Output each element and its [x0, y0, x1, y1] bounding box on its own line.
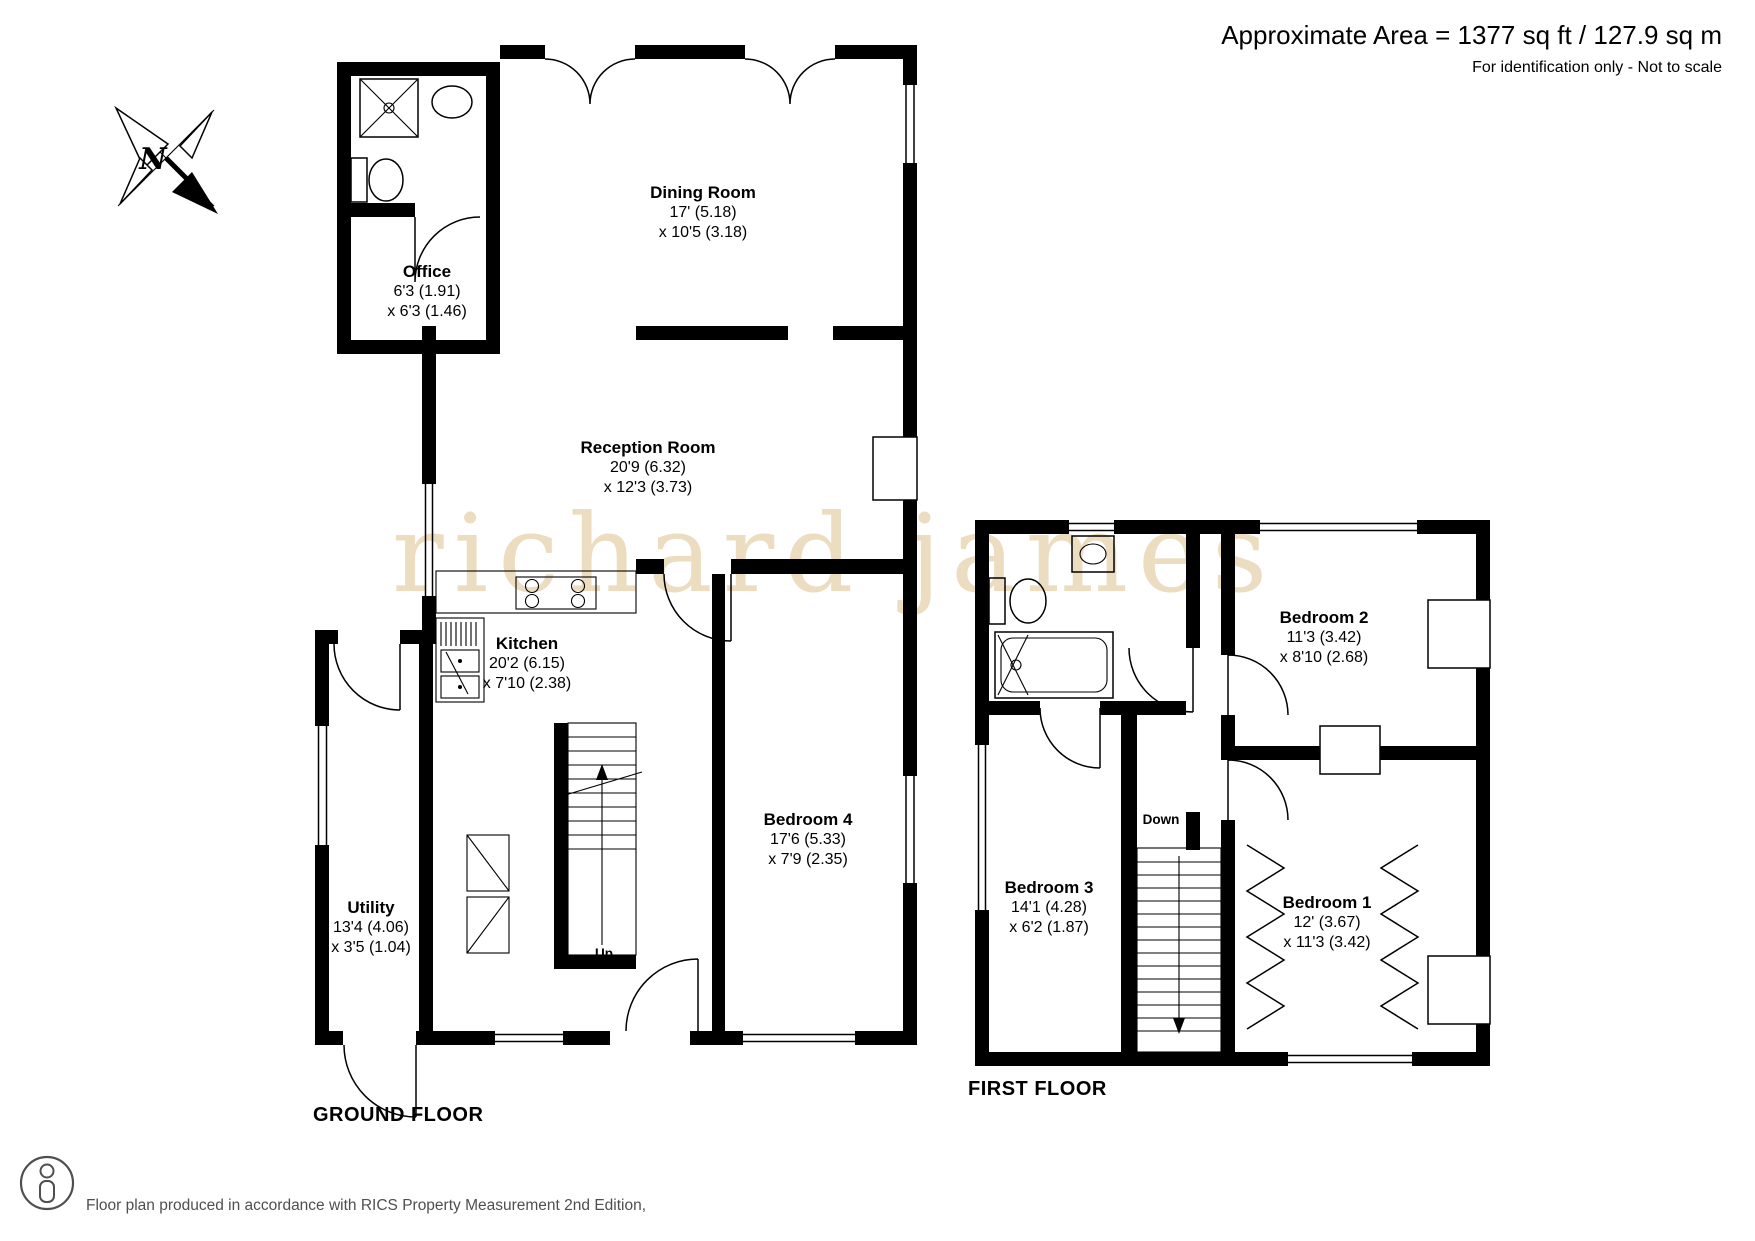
- room-dimension: x 8'10 (2.68): [1280, 648, 1369, 668]
- room-label-bedroom-4: Bedroom 4 17'6 (5.33) x 7'9 (2.35): [764, 810, 853, 870]
- room-dimension: x 6'3 (1.46): [387, 302, 467, 322]
- room-dimension: 17'6 (5.33): [764, 830, 853, 850]
- identification-note-text: For identification only - Not to scale: [1221, 59, 1722, 77]
- bathroom-basin-icon: [1072, 536, 1114, 572]
- room-dimension: x 7'9 (2.35): [764, 850, 853, 870]
- room-dimension: x 12'3 (3.73): [580, 478, 715, 498]
- stairs-up-label: Up: [595, 946, 613, 961]
- room-dimension: 20'9 (6.32): [580, 458, 715, 478]
- footer-line-1: Floor plan produced in accordance with R…: [86, 1195, 791, 1216]
- approximate-area-text: Approximate Area = 1377 sq ft / 127.9 sq…: [1221, 20, 1722, 51]
- first-floor-doors: [1040, 648, 1288, 820]
- ground-floor-stairs: [562, 723, 642, 955]
- bathtub-icon: [995, 632, 1113, 698]
- room-name: Bedroom 3: [1005, 878, 1094, 898]
- footer-disclaimer: Floor plan produced in accordance with R…: [86, 1153, 791, 1241]
- stairs-down-label: Down: [1143, 812, 1180, 827]
- cloakroom-fixtures: [351, 79, 472, 202]
- room-name: Utility: [331, 898, 411, 918]
- bathroom-fixtures: [989, 536, 1114, 698]
- room-dimension: x 6'2 (1.87): [1005, 918, 1094, 938]
- shower-icon: [360, 79, 418, 137]
- room-name: Bedroom 1: [1283, 893, 1372, 913]
- person-badge-icon: [21, 1157, 73, 1209]
- compass-rose-icon: N: [116, 108, 218, 214]
- bathroom-toilet-icon: [989, 578, 1046, 624]
- basin-icon: [432, 86, 472, 118]
- room-label-dining-room: Dining Room 17' (5.18) x 10'5 (3.18): [650, 183, 756, 243]
- floorplan-page: richard james N: [0, 0, 1755, 1241]
- room-dimension: 13'4 (4.06): [331, 918, 411, 938]
- room-name: Dining Room: [650, 183, 756, 203]
- ground-floor-title: GROUND FLOOR: [313, 1104, 483, 1127]
- first-floor-plan: [975, 520, 1490, 1066]
- compass-north-label: N: [138, 142, 168, 177]
- room-dimension: 20'2 (6.15): [483, 654, 571, 674]
- room-name: Office: [387, 262, 467, 282]
- utility-appliance-icons: [467, 835, 509, 953]
- room-name: Bedroom 4: [764, 810, 853, 830]
- room-dimension: 12' (3.67): [1283, 913, 1372, 933]
- first-floor-title: FIRST FLOOR: [968, 1078, 1107, 1101]
- room-name: Kitchen: [483, 634, 571, 654]
- toilet-icon: [351, 158, 403, 202]
- room-dimension: x 11'3 (3.42): [1283, 933, 1372, 953]
- header: Approximate Area = 1377 sq ft / 127.9 sq…: [1221, 20, 1722, 77]
- first-floor-walls: [975, 520, 1490, 1066]
- room-label-reception-room: Reception Room 20'9 (6.32) x 12'3 (3.73): [580, 438, 715, 498]
- kitchen-fixtures: [436, 571, 636, 953]
- room-dimension: 11'3 (3.42): [1280, 628, 1369, 648]
- room-dimension: 14'1 (4.28): [1005, 898, 1094, 918]
- room-dimension: x 7'10 (2.38): [483, 674, 571, 694]
- room-name: Bedroom 2: [1280, 608, 1369, 628]
- room-dimension: x 3'5 (1.04): [331, 938, 411, 958]
- room-name: Reception Room: [580, 438, 715, 458]
- ground-floor-walls: [315, 45, 917, 1045]
- room-dimension: 6'3 (1.91): [387, 282, 467, 302]
- room-dimension: 17' (5.18): [650, 203, 756, 223]
- room-label-bedroom-2: Bedroom 2 11'3 (3.42) x 8'10 (2.68): [1280, 608, 1369, 668]
- floorplan-drawing: N: [0, 0, 1755, 1241]
- room-label-bedroom-3: Bedroom 3 14'1 (4.28) x 6'2 (1.87): [1005, 878, 1094, 938]
- room-dimension: x 10'5 (3.18): [650, 223, 756, 243]
- room-label-utility: Utility 13'4 (4.06) x 3'5 (1.04): [331, 898, 411, 958]
- first-floor-stairs: [1137, 848, 1221, 1052]
- room-label-bedroom-1: Bedroom 1 12' (3.67) x 11'3 (3.42): [1283, 893, 1372, 953]
- room-label-office: Office 6'3 (1.91) x 6'3 (1.46): [387, 262, 467, 322]
- room-label-kitchen: Kitchen 20'2 (6.15) x 7'10 (2.38): [483, 634, 571, 694]
- kitchen-sink-icon: [436, 618, 484, 702]
